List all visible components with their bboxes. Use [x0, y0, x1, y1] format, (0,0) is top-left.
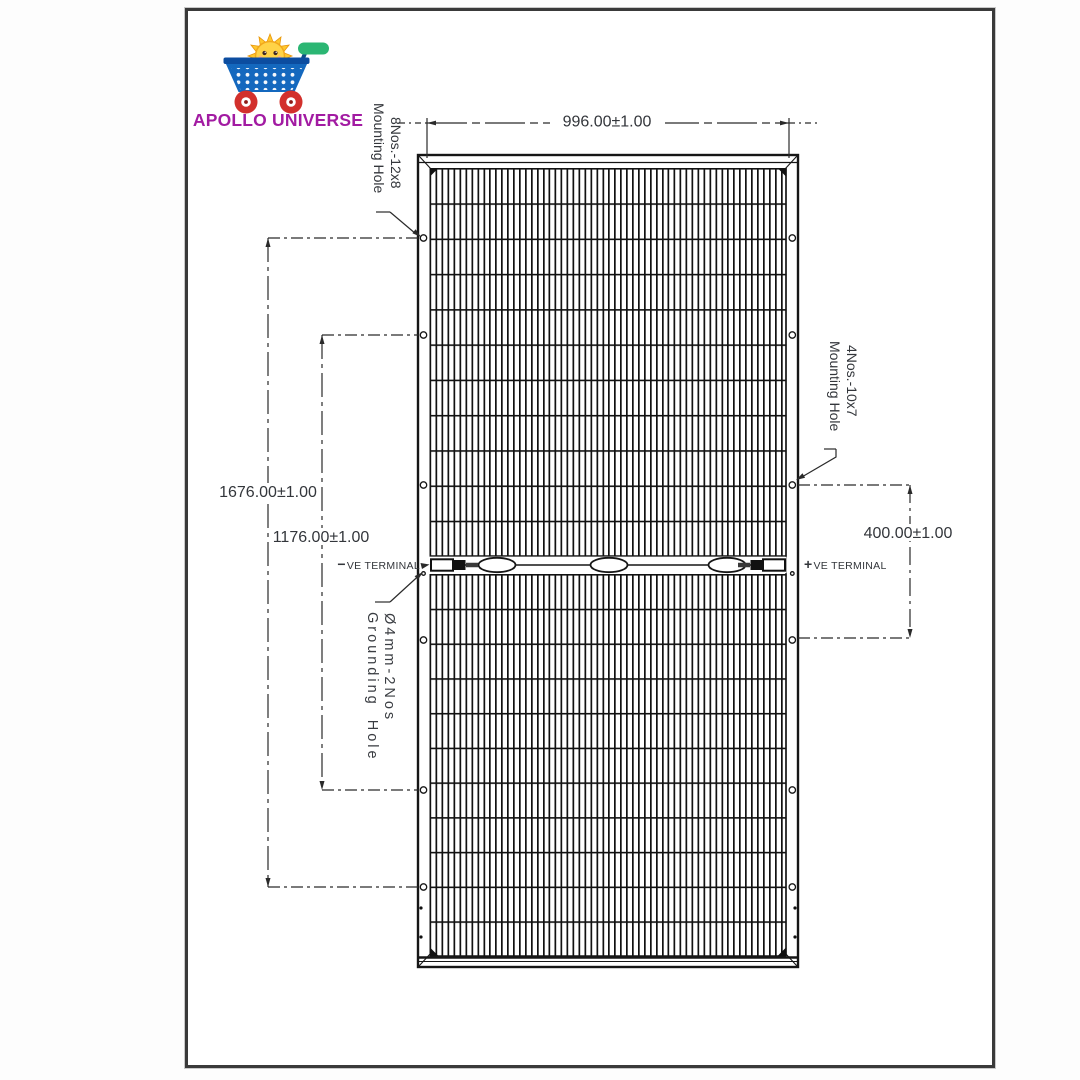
mounting-hole	[420, 637, 426, 643]
mounting-hole	[420, 235, 426, 241]
dim-height-outer-text: 1676.00±1.00	[219, 484, 317, 501]
dim-width-text: 996.00±1.00	[563, 114, 652, 131]
mount-top-line1: 8Nos.-12x8	[388, 117, 404, 189]
panel-drawing: 996.00±1.00 1676.00±1.00 1176.00±1.00	[0, 0, 1080, 1080]
cell-grid-bottom	[430, 574, 787, 956]
grounding-line1: Ø4mm-2Nos	[381, 613, 397, 722]
dim-height-inner-text: 1176.00±1.00	[273, 529, 370, 546]
page: APOLLO UNIVERSE	[0, 0, 1080, 1080]
mount-right-line1: 4Nos.-10x7	[844, 345, 860, 417]
junction-box-oval	[591, 558, 628, 572]
negative-terminal-block	[431, 559, 453, 570]
terminal-pos-label: +VE TERMINAL	[804, 556, 887, 572]
mounting-hole	[420, 787, 426, 793]
junction-box-band	[430, 557, 787, 573]
junction-box-oval	[479, 558, 516, 572]
mounting-hole	[789, 637, 795, 643]
label-mounting-hole-right: 4Nos.-10x7 Mounting Hole	[796, 341, 860, 480]
positive-terminal-block	[763, 559, 785, 570]
mount-top-line2: Mounting Hole	[371, 103, 387, 193]
label-mounting-hole-top: 8Nos.-12x8 Mounting Hole	[371, 103, 421, 237]
mounting-hole	[789, 235, 795, 241]
label-grounding-hole: Ø4mm-2Nos Grounding Hole	[364, 572, 423, 762]
mounting-hole	[420, 884, 426, 890]
grounding-line2: Grounding Hole	[364, 612, 380, 762]
terminal-connector	[751, 560, 763, 570]
mounting-hole	[789, 787, 795, 793]
mounting-hole	[789, 482, 795, 488]
grounding-hole	[422, 572, 426, 576]
mounting-hole	[420, 482, 426, 488]
mount-right-line2: Mounting Hole	[827, 341, 843, 431]
terminal-connector	[454, 560, 466, 570]
mounting-hole	[420, 332, 426, 338]
mounting-hole	[789, 332, 795, 338]
dim-right-text: 400.00±1.00	[864, 525, 953, 542]
grounding-hole	[791, 572, 795, 576]
mounting-hole	[789, 884, 795, 890]
dim-width: 996.00±1.00	[399, 113, 817, 159]
terminal-neg-label: −VE TERMINAL	[337, 556, 420, 572]
cell-grid-top	[430, 168, 787, 556]
